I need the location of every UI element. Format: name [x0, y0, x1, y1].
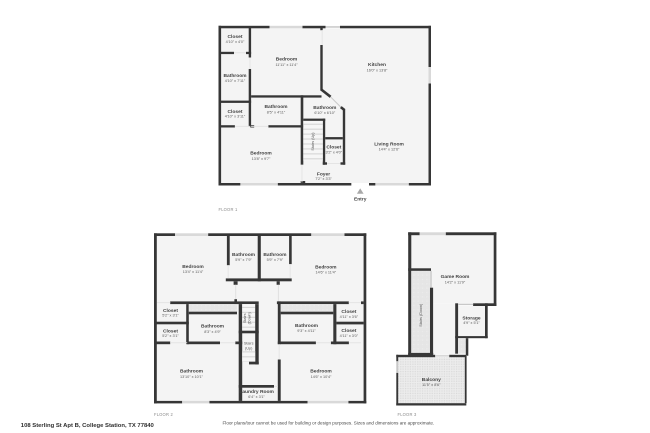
svg-text:4'10" x 7'11": 4'10" x 7'11": [225, 79, 246, 83]
svg-text:Bathroom: Bathroom: [263, 252, 287, 258]
svg-text:Bedroom: Bedroom: [250, 151, 272, 157]
svg-text:6'4" x 3'1": 6'4" x 3'1": [248, 395, 265, 399]
svg-text:Floor plans/tour cannot be use: Floor plans/tour cannot be used for buil…: [223, 420, 435, 425]
svg-text:Bathroom: Bathroom: [313, 105, 337, 111]
svg-text:5'9" x 7'9": 5'9" x 7'9": [235, 258, 252, 262]
svg-text:5'2" x 3'1": 5'2" x 3'1": [162, 334, 179, 338]
svg-text:Game Room: Game Room: [441, 274, 470, 280]
svg-text:14'6" x 11'4": 14'6" x 11'4": [316, 271, 337, 275]
svg-text:FLOOR 1: FLOOR 1: [219, 207, 238, 212]
svg-text:11'5" x 8'6": 11'5" x 8'6": [422, 383, 441, 387]
svg-text:4'10" x 4'0": 4'10" x 4'0": [226, 40, 245, 44]
svg-text:13'4" x 11'4": 13'4" x 11'4": [183, 270, 204, 274]
svg-text:Kitchen: Kitchen: [368, 62, 386, 68]
svg-text:(Down): (Down): [248, 311, 252, 324]
svg-text:16'0" x 13'8": 16'0" x 13'8": [367, 68, 388, 72]
svg-text:8'5" x 4'11": 8'5" x 4'11": [267, 110, 286, 114]
svg-text:4'10" x 3'11": 4'10" x 3'11": [225, 114, 246, 118]
svg-text:FLOOR 3: FLOOR 3: [398, 412, 417, 417]
svg-text:13'8" x 9'7": 13'8" x 9'7": [252, 157, 271, 161]
svg-text:6'10" x 6'10": 6'10" x 6'10": [314, 111, 335, 115]
svg-text:(Up): (Up): [245, 347, 253, 351]
svg-text:14'2" x 11'9": 14'2" x 11'9": [445, 280, 466, 284]
svg-text:5'2" x 3'1": 5'2" x 3'1": [162, 314, 179, 318]
svg-text:Stairs (Up): Stairs (Up): [311, 132, 315, 151]
svg-text:Bathroom: Bathroom: [264, 104, 288, 110]
svg-text:Bedroom: Bedroom: [182, 264, 204, 270]
svg-text:4'11" x 3'6": 4'11" x 3'6": [340, 315, 359, 319]
svg-text:Stairs (Down): Stairs (Down): [419, 303, 423, 327]
svg-text:Bathroom: Bathroom: [295, 323, 319, 329]
svg-text:9'3" x 4'11": 9'3" x 4'11": [297, 329, 316, 333]
svg-text:Stairs: Stairs: [243, 313, 247, 323]
svg-text:13'10" x 10'1": 13'10" x 10'1": [180, 375, 204, 379]
svg-text:14'4" x 12'6": 14'4" x 12'6": [379, 148, 400, 152]
svg-text:Bedroom: Bedroom: [276, 57, 298, 63]
svg-text:4'9" x 5'1": 4'9" x 5'1": [463, 321, 480, 325]
svg-text:14'6" x 10'4": 14'6" x 10'4": [311, 375, 332, 379]
svg-text:Living Room: Living Room: [374, 141, 404, 147]
svg-text:FLOOR 2: FLOOR 2: [154, 412, 173, 417]
svg-text:Stairs: Stairs: [244, 342, 254, 346]
svg-text:7'2" x 3'3": 7'2" x 3'3": [315, 177, 332, 181]
svg-text:Bedroom: Bedroom: [310, 369, 332, 375]
svg-text:11'11" x 11'4": 11'11" x 11'4": [275, 63, 298, 67]
svg-text:Balcony: Balcony: [422, 377, 441, 383]
svg-text:Bathroom: Bathroom: [180, 369, 204, 375]
svg-text:4'11" x 3'0": 4'11" x 3'0": [340, 334, 359, 338]
svg-text:3'2" x 4'0": 3'2" x 4'0": [325, 150, 342, 154]
svg-text:Entry: Entry: [354, 196, 367, 202]
svg-text:Bedroom: Bedroom: [315, 264, 337, 270]
svg-text:8'3" x 4'9": 8'3" x 4'9": [204, 330, 221, 334]
svg-text:Bathroom: Bathroom: [232, 252, 256, 258]
svg-text:5'9" x 7'9": 5'9" x 7'9": [267, 258, 284, 262]
svg-text:108 Sterling St Apt B, College: 108 Sterling St Apt B, College Station, …: [21, 423, 155, 429]
svg-text:Bathroom: Bathroom: [201, 324, 225, 330]
